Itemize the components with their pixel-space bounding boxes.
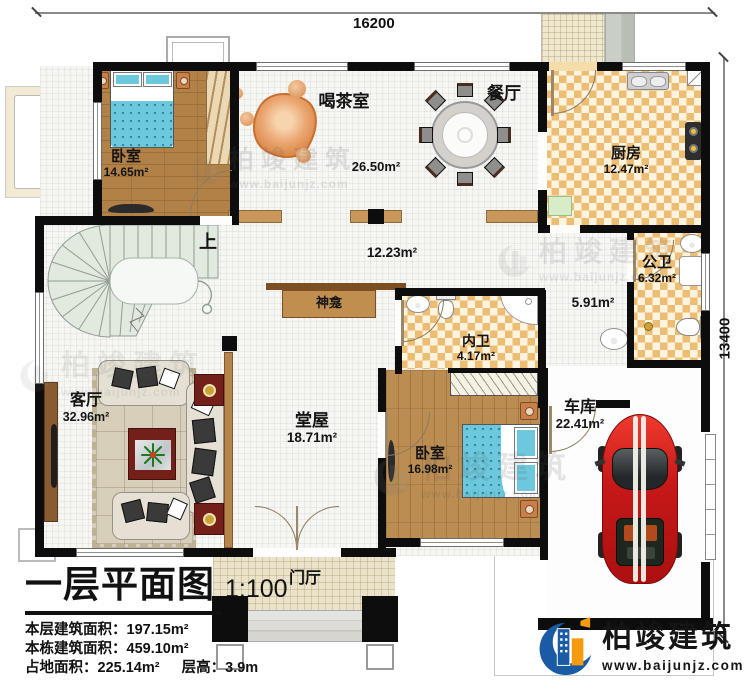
pillow [114, 73, 141, 86]
room-label-bedroom1: 卧室 14.65m² [104, 149, 149, 179]
logo-icon [536, 614, 594, 682]
window [701, 253, 710, 311]
stat-footprint: 占地面积：225.14m² 层高：3.9m [25, 659, 288, 678]
back-porch [541, 12, 605, 64]
tv-bedroom1 [108, 204, 154, 213]
tea-stool [240, 112, 254, 126]
room-name: 卧室 [111, 148, 141, 165]
door-opening [200, 216, 232, 225]
nightstand [176, 72, 190, 89]
stairs-up-label: 上 [199, 232, 217, 252]
tv-living [51, 424, 57, 488]
room-name: 堂屋 [295, 411, 329, 430]
car-engine-cover [616, 518, 664, 566]
room-area: 12.23m² [367, 245, 417, 260]
room-area-tea-room: 26.50m² [352, 160, 400, 175]
room-area: 12.47m² [604, 163, 649, 176]
dimension-width: 16200 [350, 15, 398, 32]
dining-chair [457, 172, 473, 186]
room-area: 6.32m² [638, 272, 676, 285]
room-area: 14.65m² [104, 166, 149, 179]
sofa [112, 492, 190, 540]
plan-title: 一层平面图 [25, 554, 215, 608]
pillow [515, 428, 537, 458]
dining-chair [457, 83, 473, 97]
tea-stool [296, 148, 311, 163]
door-opening [550, 225, 580, 233]
kitchen-mat [548, 196, 572, 216]
door-leaf [401, 300, 404, 346]
room-label-bedroom2: 卧室 16.98m² [408, 446, 453, 476]
window [35, 292, 44, 384]
room-name: 餐厅 [487, 84, 521, 103]
bedroom2-closet [450, 372, 538, 396]
pillow [515, 463, 537, 493]
window [93, 102, 102, 180]
stat-building-area: 本栋建筑面积：459.10m² [25, 640, 288, 659]
room-name: 车库 [564, 399, 596, 416]
room-area: 18.71m² [287, 430, 337, 445]
shrine-text: 神龛 [316, 295, 342, 310]
room-label-garage: 车库 22.41m² [556, 399, 604, 431]
car-stripe [641, 416, 646, 582]
bedroom1-closet [206, 70, 232, 164]
title-block: 一层平面图 1:100 本层建筑面积：197.15m² 本栋建筑面积：459.1… [25, 554, 288, 678]
logo-company: 柏竣建筑 [602, 623, 744, 653]
door-leaf [296, 506, 298, 550]
column [368, 209, 384, 224]
title-underline [25, 611, 221, 615]
stove [685, 122, 702, 160]
room-name: 门厅 [289, 570, 321, 587]
stat-floor-area: 本层建筑面积：197.15m² [25, 621, 288, 640]
room-label-tea-room: 喝茶室 [319, 92, 370, 111]
corridor-sink [600, 328, 628, 350]
dimension-height: 13400 [717, 309, 734, 369]
wall [35, 216, 44, 557]
dimension-line-top [35, 12, 715, 14]
window [256, 62, 348, 71]
kitchen-sink [627, 72, 669, 90]
shrine-label: 神龛 [316, 296, 342, 311]
nightstand [520, 402, 538, 420]
wall [540, 368, 548, 560]
garage-door [705, 434, 716, 560]
door-leaf [385, 412, 388, 458]
room-area: 22.41m² [556, 417, 604, 432]
tea-stool [288, 80, 306, 98]
window [622, 62, 686, 71]
room-area-corridor: 5.91m² [572, 295, 615, 310]
wall [93, 62, 710, 71]
window [414, 62, 510, 71]
hall-divider [224, 352, 233, 548]
logo: 柏竣建筑 www.baijunjz.com [536, 614, 744, 682]
room-name: 客厅 [70, 392, 102, 409]
window [420, 538, 504, 547]
wall [627, 360, 710, 368]
bed [110, 70, 174, 148]
wall [701, 62, 710, 368]
wall [378, 368, 386, 548]
back-porch-step [605, 12, 635, 64]
room-area: 5.91m² [572, 295, 615, 310]
door-leaf [551, 70, 554, 116]
shrine-shelf [266, 283, 406, 290]
nightstand [520, 500, 538, 518]
room-area: 4.17m² [457, 350, 495, 363]
car-stripe [633, 416, 638, 582]
sofa [98, 360, 190, 406]
coffee-table [128, 428, 176, 480]
dining-chair [497, 127, 511, 143]
plant [140, 442, 166, 468]
plan-scale: 1:100 [225, 575, 288, 604]
room-name: 公卫 [642, 254, 672, 271]
room-label-dining: 餐厅 [487, 84, 521, 103]
pillow [144, 73, 171, 86]
car-windshield [612, 448, 668, 490]
blanket [111, 99, 173, 147]
room-label-kitchen: 厨房 12.47m² [604, 146, 649, 176]
room-area-open-hall: 12.23m² [367, 245, 417, 260]
floor-plan-canvas: 卧室 14.65m² 喝茶室 26.50m² 餐厅 厨房 12.47m² 公卫 … [0, 0, 750, 689]
room-label-public-bath: 公卫 6.32m² [638, 255, 676, 285]
sheet-fold [501, 425, 515, 497]
room-label-inner-bath: 内卫 4.17m² [457, 334, 495, 363]
side-table [194, 503, 224, 535]
room-name: 喝茶室 [319, 92, 370, 111]
door-leaf [633, 240, 636, 282]
room-area: 26.50m² [352, 159, 400, 174]
car [598, 414, 682, 586]
dining-table [431, 101, 499, 169]
room-area: 16.98m² [408, 463, 453, 476]
room-label-foyer: 门厅 [289, 570, 321, 588]
stairs-up-text: 上 [199, 232, 217, 252]
bed [462, 424, 540, 498]
logo-website: www.baijunjz.com [602, 658, 744, 673]
foyer-column [362, 596, 398, 642]
room-name: 卧室 [415, 445, 445, 462]
room-name: 厨房 [611, 145, 641, 162]
door-opening [538, 132, 547, 190]
room-label-living: 客厅 32.96m² [63, 392, 110, 424]
wall [395, 288, 545, 296]
floor-drain [644, 322, 653, 331]
door-leaf [549, 406, 552, 454]
side-table [194, 374, 224, 406]
beam-threshold [486, 210, 538, 223]
column-base [366, 644, 394, 670]
room-label-main-hall: 堂屋 18.71m² [287, 411, 337, 445]
room-name: 内卫 [462, 333, 490, 349]
wall [448, 368, 540, 373]
dining-chair [419, 127, 433, 143]
room-area: 32.96m² [63, 410, 110, 424]
